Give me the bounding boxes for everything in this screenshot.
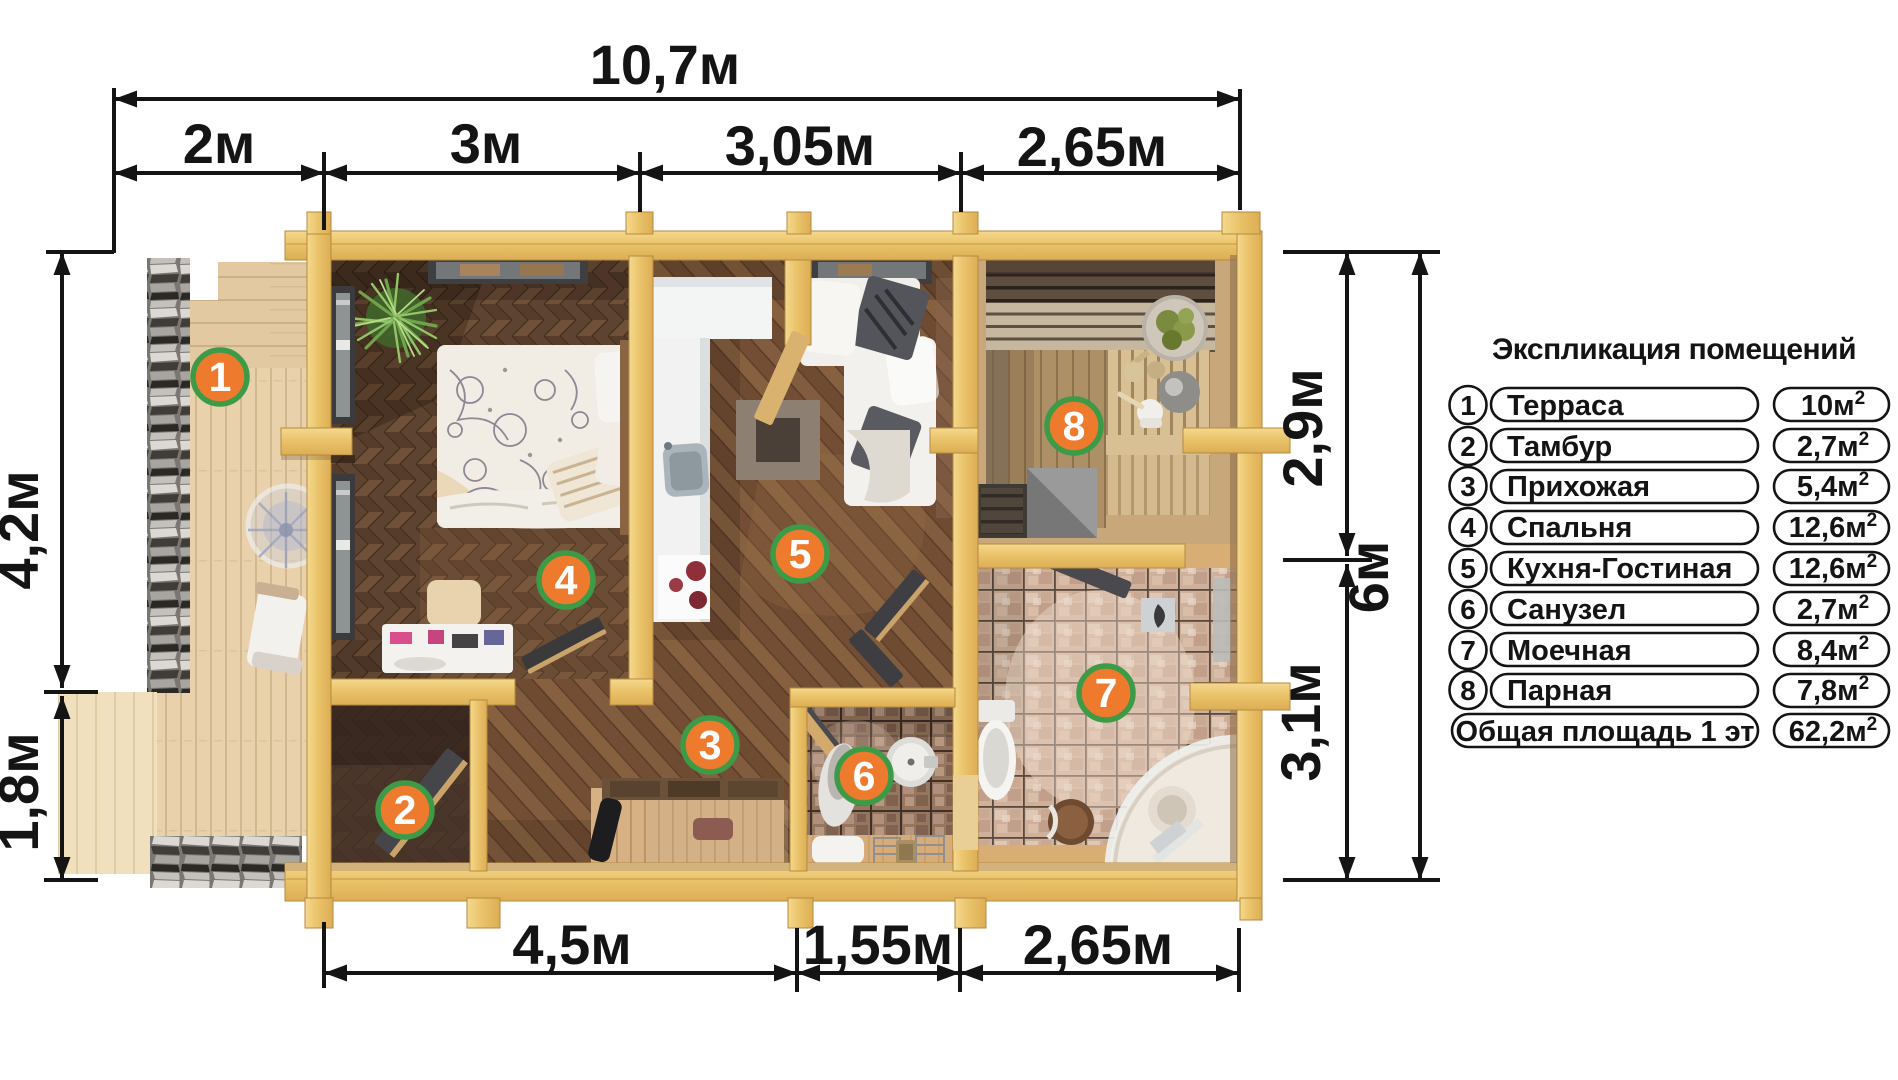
svg-text:2,7м2: 2,7м2 [1797,429,1869,463]
svg-text:3: 3 [1460,471,1476,502]
svg-text:5: 5 [1460,553,1476,584]
svg-text:8: 8 [1063,403,1086,449]
svg-text:12,6м2: 12,6м2 [1789,551,1877,585]
svg-text:2,65м: 2,65м [1017,115,1167,178]
svg-text:2,9м: 2,9м [1271,368,1334,487]
svg-text:12,6м2: 12,6м2 [1789,510,1877,544]
svg-text:62,2м2: 62,2м2 [1789,714,1877,748]
svg-text:6: 6 [1460,594,1476,625]
svg-text:4,2м: 4,2м [0,470,50,589]
svg-text:Тамбур: Тамбур [1507,431,1612,463]
svg-text:1: 1 [1460,390,1476,421]
svg-text:Моечная: Моечная [1507,635,1632,667]
svg-text:2м: 2м [183,112,256,175]
svg-text:4: 4 [1460,512,1476,543]
svg-text:7: 7 [1460,635,1476,666]
svg-text:8: 8 [1460,675,1476,706]
svg-text:Кухня-Гостиная: Кухня-Гостиная [1507,553,1732,585]
svg-text:3,05м: 3,05м [725,114,875,177]
svg-text:7,8м2: 7,8м2 [1797,673,1869,707]
svg-text:7: 7 [1095,670,1118,716]
svg-text:2,7м2: 2,7м2 [1797,592,1869,626]
svg-text:1,8м: 1,8м [0,732,50,851]
svg-text:2,65м: 2,65м [1023,913,1173,976]
svg-text:Парная: Парная [1507,675,1612,707]
svg-text:Общая площадь 1 эт: Общая площадь 1 эт [1456,716,1755,748]
svg-text:Санузел: Санузел [1507,594,1626,626]
svg-text:5: 5 [789,531,812,577]
svg-text:3,1м: 3,1м [1269,662,1332,781]
svg-text:Экспликация помещений: Экспликация помещений [1492,333,1856,366]
svg-text:10,7м: 10,7м [590,33,740,96]
svg-text:Прихожая: Прихожая [1507,471,1650,503]
svg-text:1: 1 [209,354,232,400]
svg-text:2: 2 [1460,431,1476,462]
svg-text:3: 3 [699,722,722,768]
svg-text:8,4м2: 8,4м2 [1797,633,1869,667]
svg-text:5,4м2: 5,4м2 [1797,469,1869,503]
svg-text:1,55м: 1,55м [803,913,953,976]
svg-text:3м: 3м [450,112,523,175]
svg-text:Спальня: Спальня [1507,512,1632,544]
svg-text:2: 2 [394,787,417,833]
svg-text:4,5м: 4,5м [512,913,631,976]
svg-text:6м: 6м [1337,541,1400,614]
svg-text:6: 6 [853,753,876,799]
svg-text:4: 4 [555,557,578,603]
svg-text:Терраса: Терраса [1507,390,1624,422]
